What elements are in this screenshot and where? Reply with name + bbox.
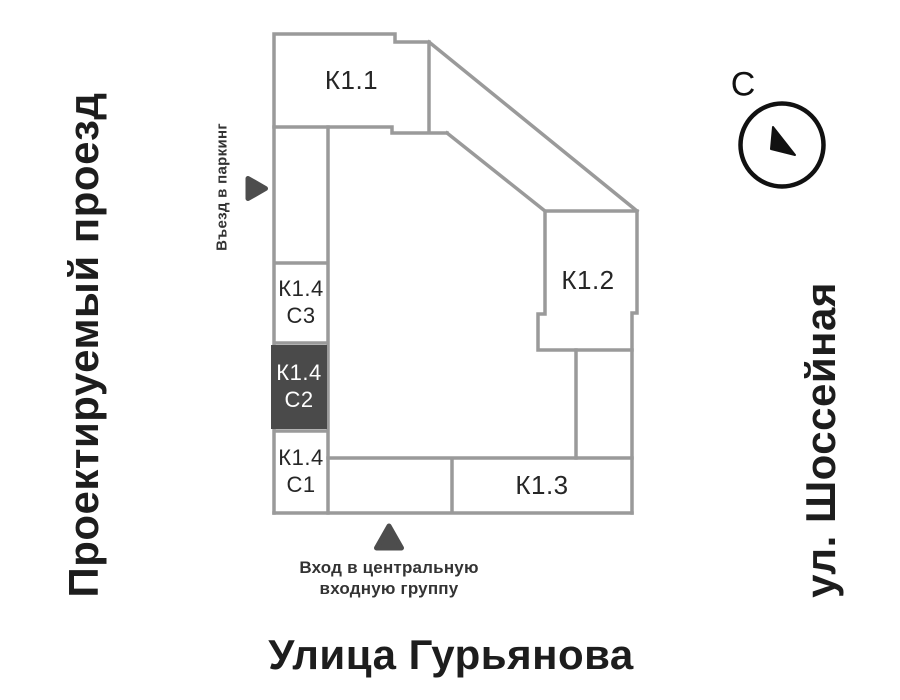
site-plan-page: { "streets": { "left": "Проектируемый пр… bbox=[0, 0, 900, 700]
building-k1-4-c2[interactable]: К1.4 С2 bbox=[271, 345, 327, 429]
building-k1-2-label: К1.2 bbox=[561, 265, 614, 297]
compass-north-label: С bbox=[731, 66, 756, 105]
building-k1-1-label: К1.1 bbox=[325, 65, 378, 97]
building-k1-1[interactable]: К1.1 bbox=[274, 34, 429, 128]
diagonal-wing-outer bbox=[429, 42, 637, 211]
building-k1-3-label: К1.3 bbox=[515, 470, 568, 502]
building-k1-4-c3-sublabel: С3 bbox=[286, 303, 315, 330]
diagonal-wing-inner bbox=[447, 133, 545, 211]
parking-entrance-label: Въезд в паркинг bbox=[214, 123, 231, 251]
building-k1-4-c1[interactable]: К1.4 С1 bbox=[274, 431, 328, 513]
building-k1-4-c2-label: К1.4 bbox=[276, 360, 321, 387]
street-label-left: Проектируемый проезд bbox=[60, 93, 108, 598]
street-label-right: ул. Шоссейная bbox=[797, 282, 845, 598]
main-entrance-marker-icon bbox=[377, 526, 402, 548]
street-label-bottom: Улица Гурьянова bbox=[268, 631, 633, 679]
building-k1-4-c1-sublabel: С1 bbox=[286, 472, 315, 499]
main-entrance-label-line2: входную группу bbox=[299, 578, 478, 599]
building-k1-4-c2-sublabel: С2 bbox=[284, 387, 313, 414]
main-entrance-label-line1: Вход в центральную bbox=[299, 557, 478, 578]
parking-entrance-arrow-icon bbox=[248, 179, 266, 199]
main-entrance-label: Вход в центральную входную группу bbox=[299, 557, 478, 600]
building-k1-4-c3-label: К1.4 bbox=[278, 276, 323, 303]
building-k1-2[interactable]: К1.2 bbox=[538, 211, 638, 350]
building-k1-3[interactable]: К1.3 bbox=[452, 458, 632, 513]
building-k1-4-c1-label: К1.4 bbox=[278, 445, 323, 472]
building-k1-4-c3[interactable]: К1.4 С3 bbox=[274, 263, 328, 343]
